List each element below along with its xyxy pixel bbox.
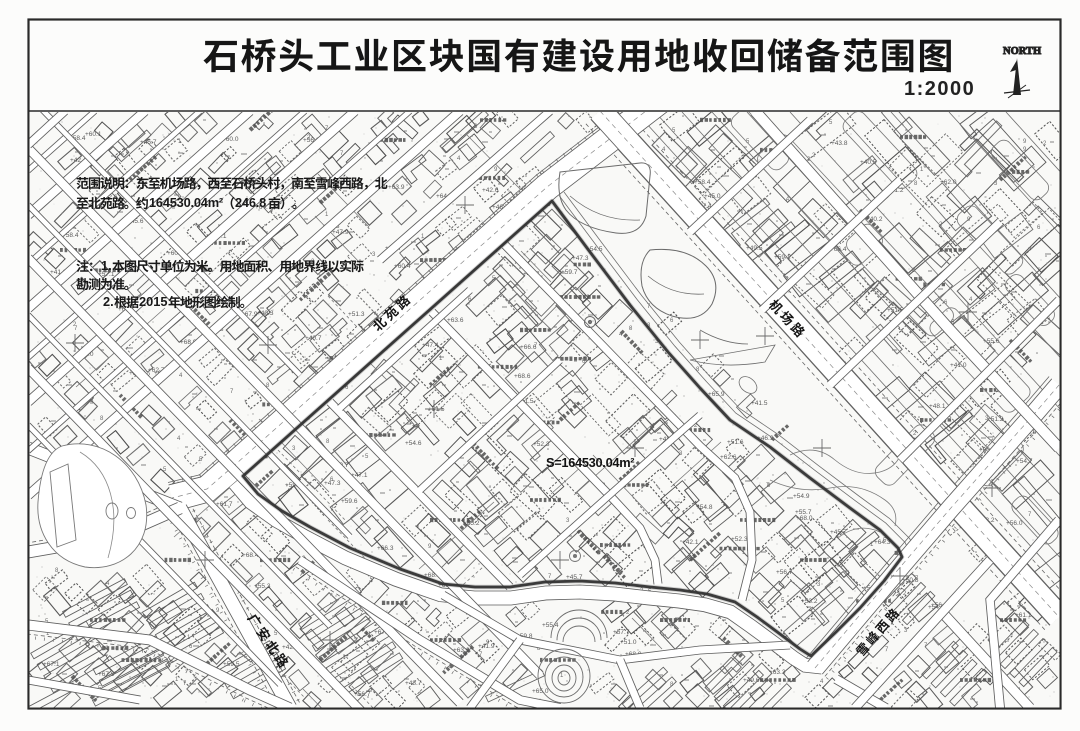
svg-text:1.: 1. — [101, 258, 112, 273]
svg-text:+65.0: +65.0 — [532, 688, 549, 695]
svg-text:+61.5: +61.5 — [428, 406, 445, 413]
svg-text:164530.04m²: 164530.04m² — [149, 195, 223, 210]
svg-text:+63.2: +63.2 — [453, 647, 470, 654]
svg-text:+42.1: +42.1 — [682, 539, 699, 546]
svg-text:+51.0: +51.0 — [620, 639, 637, 646]
svg-text:+68.0: +68.0 — [796, 515, 813, 522]
svg-text:+63.6: +63.6 — [447, 317, 464, 324]
svg-text:+52.3: +52.3 — [533, 441, 550, 448]
svg-text:+60.1: +60.1 — [85, 131, 102, 138]
svg-text:+55.3: +55.3 — [254, 583, 271, 590]
svg-text:+47.4: +47.4 — [422, 342, 439, 349]
svg-text:2015: 2015 — [139, 294, 167, 309]
svg-text:+47.9: +47.9 — [332, 229, 349, 236]
svg-text:+68.6: +68.6 — [514, 373, 531, 380]
svg-text:NORTH: NORTH — [1003, 46, 1041, 57]
svg-text:+59.7: +59.7 — [561, 269, 578, 276]
svg-text:+55.7: +55.7 — [795, 509, 812, 516]
svg-text:+54.7: +54.7 — [1016, 458, 1033, 465]
svg-text:+62.0: +62.0 — [940, 179, 957, 186]
svg-text:+47.3: +47.3 — [572, 255, 589, 262]
svg-text:+63.3: +63.3 — [769, 669, 786, 676]
svg-text:+40.7: +40.7 — [305, 335, 322, 342]
svg-text:+54.6: +54.6 — [405, 440, 422, 447]
svg-text:+43.8: +43.8 — [831, 140, 848, 147]
svg-text:+52.3: +52.3 — [731, 536, 748, 543]
svg-text:+54.9: +54.9 — [793, 493, 810, 500]
svg-text:1:2000: 1:2000 — [904, 78, 975, 100]
svg-text:+41.5: +41.5 — [751, 400, 768, 407]
svg-text:+59.6: +59.6 — [341, 498, 358, 505]
svg-text:+65.2: +65.2 — [463, 520, 480, 527]
svg-text:+48.1: +48.1 — [929, 403, 946, 410]
svg-text:+48.7: +48.7 — [405, 680, 422, 687]
svg-text:+57.7: +57.7 — [613, 629, 630, 636]
svg-text:246.8: 246.8 — [235, 195, 266, 210]
svg-text:+40.2: +40.2 — [866, 216, 883, 223]
svg-text:2.: 2. — [103, 294, 114, 309]
svg-text:+56.7: +56.7 — [354, 691, 371, 698]
svg-text:+54.8: +54.8 — [696, 504, 713, 511]
svg-text:+51.6: +51.6 — [727, 439, 744, 446]
svg-text:+60.4: +60.4 — [394, 263, 411, 270]
svg-text:+63.9: +63.9 — [388, 184, 405, 191]
svg-text:S=164530.04m²: S=164530.04m² — [546, 455, 634, 470]
svg-text:+42.6: +42.6 — [482, 187, 499, 194]
svg-text:+59.1: +59.1 — [774, 254, 791, 261]
svg-text:+51.3: +51.3 — [348, 311, 365, 318]
svg-text:+66.3: +66.3 — [377, 545, 394, 552]
svg-text:+55.4: +55.4 — [542, 622, 559, 629]
svg-text:+56.7: +56.7 — [776, 569, 793, 576]
svg-text:+62.6: +62.6 — [720, 454, 737, 461]
svg-text:+53.2: +53.2 — [801, 598, 818, 605]
svg-text:+56.0: +56.0 — [1006, 520, 1023, 527]
svg-text:+45.7: +45.7 — [830, 529, 847, 536]
